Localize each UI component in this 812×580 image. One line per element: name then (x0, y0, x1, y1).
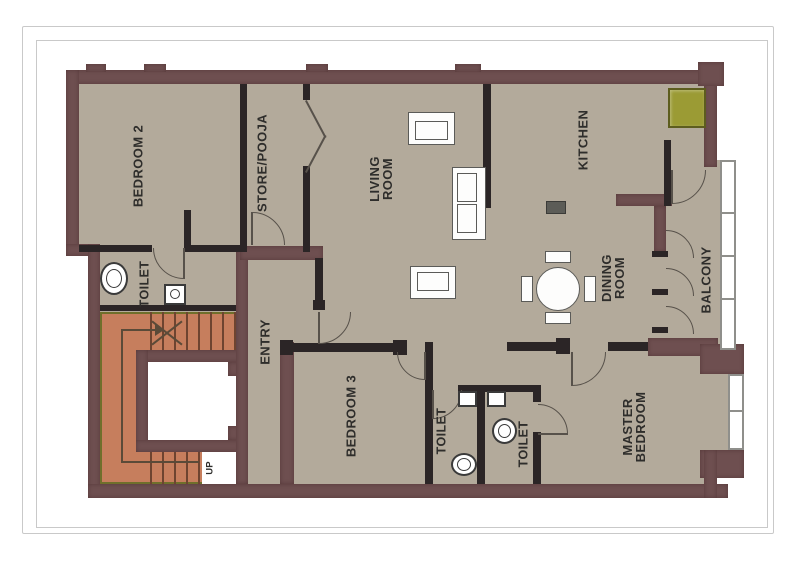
entry-right-wall-lower (280, 342, 294, 484)
store-right-wall (303, 166, 310, 252)
interior-wall-bedroom2-toilet (79, 245, 152, 252)
store-right-wall (303, 84, 310, 100)
exterior-wall-left-lower (88, 244, 100, 498)
room-label-bedroom2-toilet: TOILET (139, 261, 152, 308)
armchair-cushion (415, 121, 448, 140)
room-label-toilet-common: TOILET (436, 408, 449, 455)
room-label-dining-room: DINING ROOM (600, 252, 626, 304)
toilet-divider-wall (477, 385, 485, 484)
dining-chair (545, 312, 571, 324)
toilet2-right-wall (533, 432, 541, 484)
room-label-living-room: LIVING ROOM (368, 152, 394, 206)
kitchen-counter (668, 88, 706, 128)
balcony-door-post (652, 289, 668, 295)
dining-chair (521, 276, 533, 302)
sofa-cushion (457, 204, 477, 233)
entry-left-wall (236, 248, 248, 484)
sofa-cushion (457, 173, 477, 202)
pilaster (86, 64, 106, 72)
room-label-toilet-master: TOILET (518, 421, 531, 468)
bay-window (728, 374, 744, 450)
window-mullion (729, 410, 743, 412)
pilaster (455, 64, 481, 72)
door-jamb (280, 340, 293, 355)
up-arrow-line (121, 329, 123, 463)
pilaster (306, 64, 328, 72)
hall-wall (280, 343, 405, 352)
room-label-entry: ENTRY (259, 319, 272, 365)
window-mullion (721, 255, 735, 257)
toilet2-right-wall (533, 385, 541, 402)
kitchen-balcony-wall (664, 140, 671, 206)
exterior-wall-left-upper (66, 70, 79, 256)
dining-table (536, 267, 580, 311)
dining-chair (545, 251, 571, 263)
up-arrow-line (121, 461, 199, 463)
door-leaf (183, 248, 185, 279)
sink-fixture (458, 391, 477, 407)
stairwell-wall (136, 350, 148, 452)
kitchen-stove (546, 201, 566, 214)
room-label-balcony: BALCONY (700, 246, 713, 313)
room-label-bedroom3: BEDROOM 3 (345, 375, 358, 457)
store-bottom-wall (240, 246, 323, 260)
interior-wall-bedroom2-toilet (184, 245, 240, 252)
toilet-fixture-inner (498, 424, 511, 438)
exterior-wall-bottom (88, 484, 728, 498)
exterior-wall-right-master (704, 450, 717, 498)
balcony-door-post (652, 327, 668, 333)
sink-basin (170, 289, 180, 299)
toilet-fixture-inner (457, 458, 471, 471)
room-label-store-pooja: STORE/POOJA (256, 114, 269, 212)
door-leaf (318, 312, 320, 344)
door-jamb (313, 300, 325, 310)
door-leaf (424, 352, 426, 380)
toilet-stairs-wall (100, 305, 236, 311)
hall-wall (608, 342, 648, 351)
armchair-cushion (417, 272, 449, 291)
door-leaf (251, 212, 253, 245)
room-label-bedroom2: BEDROOM 2 (132, 125, 145, 207)
window-mullion (721, 298, 735, 300)
door-leaf (571, 352, 573, 386)
floor-plan-page: BEDROOM 2 TOILET STORE/POOJA ENTRY LIVIN… (0, 0, 812, 580)
balcony-door-post (652, 251, 668, 257)
pilaster-corner (698, 62, 724, 86)
door-jamb (556, 338, 570, 354)
dining-balcony-wall (654, 206, 666, 252)
exterior-wall-top (66, 70, 718, 84)
stairs-up-label: UP (204, 461, 217, 475)
window-mullion (721, 212, 735, 214)
pilaster (144, 64, 166, 72)
room-label-kitchen: KITCHEN (577, 110, 590, 171)
door-leaf (538, 433, 568, 435)
stairwell-wall (136, 440, 240, 452)
door-leaf (671, 170, 673, 204)
interior-wall-stub (184, 210, 191, 252)
stairwell-wall (136, 350, 240, 362)
entry-right-wall-upper (315, 258, 323, 304)
sink-fixture (487, 391, 506, 407)
room-label-master-bedroom: MASTER BEDROOM (621, 388, 647, 466)
dining-chair (584, 276, 596, 302)
floor-bay-window (704, 374, 730, 450)
stair-treads-lower (140, 452, 202, 484)
interior-wall-bedroom2-store (240, 84, 247, 252)
toilet-fixture-inner (106, 269, 122, 288)
stair-void (148, 362, 228, 440)
up-arrow-line (121, 329, 157, 331)
